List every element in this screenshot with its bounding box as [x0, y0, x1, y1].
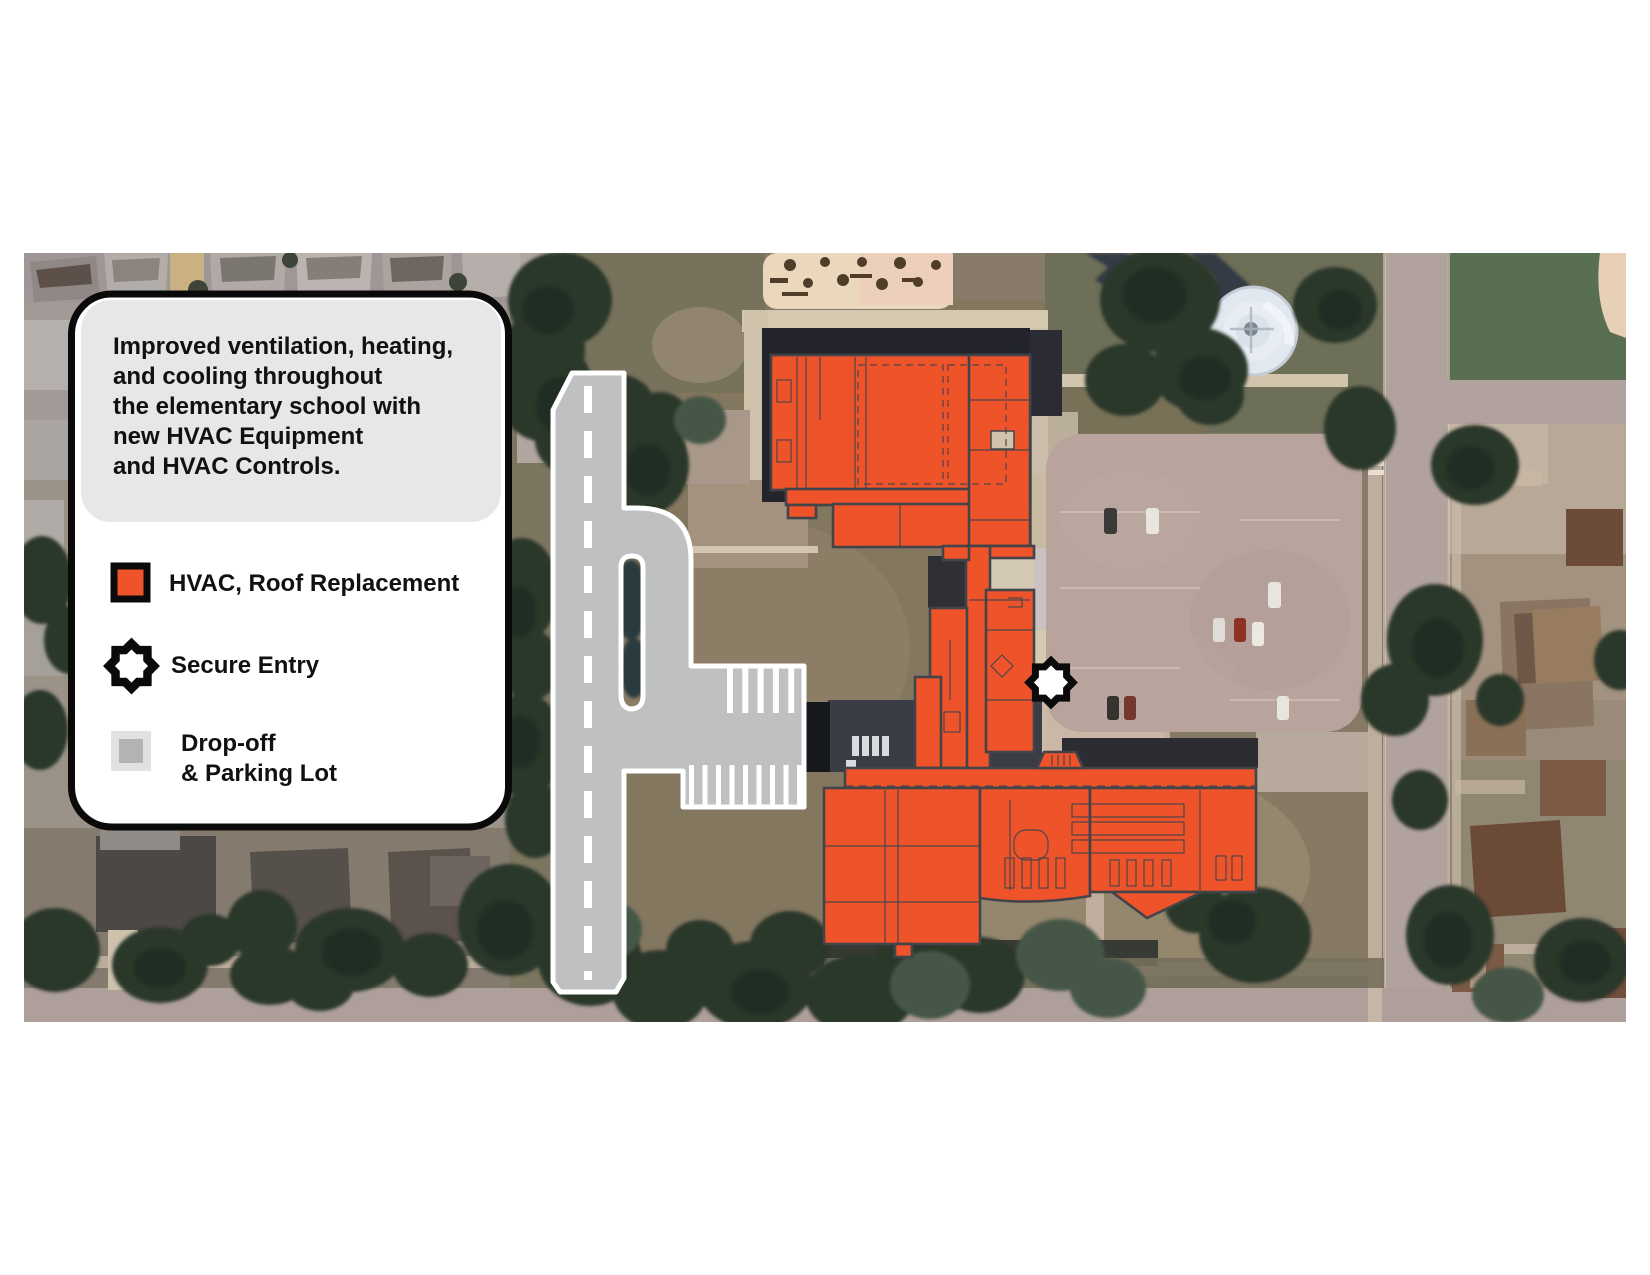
svg-text:& Parking Lot: & Parking Lot	[181, 760, 337, 787]
svg-text:HVAC, Roof Replacement: HVAC, Roof Replacement	[169, 570, 459, 597]
svg-text:Secure Entry: Secure Entry	[171, 652, 320, 679]
svg-text:and HVAC Controls.: and HVAC Controls.	[113, 453, 341, 480]
svg-text:the elementary school with: the elementary school with	[113, 393, 421, 420]
svg-text:new HVAC Equipment: new HVAC Equipment	[113, 423, 363, 450]
svg-text:and cooling throughout: and cooling throughout	[113, 363, 382, 390]
svg-text:Improved ventilation, heating,: Improved ventilation, heating,	[113, 333, 453, 360]
svg-text:Drop-off: Drop-off	[181, 730, 277, 757]
